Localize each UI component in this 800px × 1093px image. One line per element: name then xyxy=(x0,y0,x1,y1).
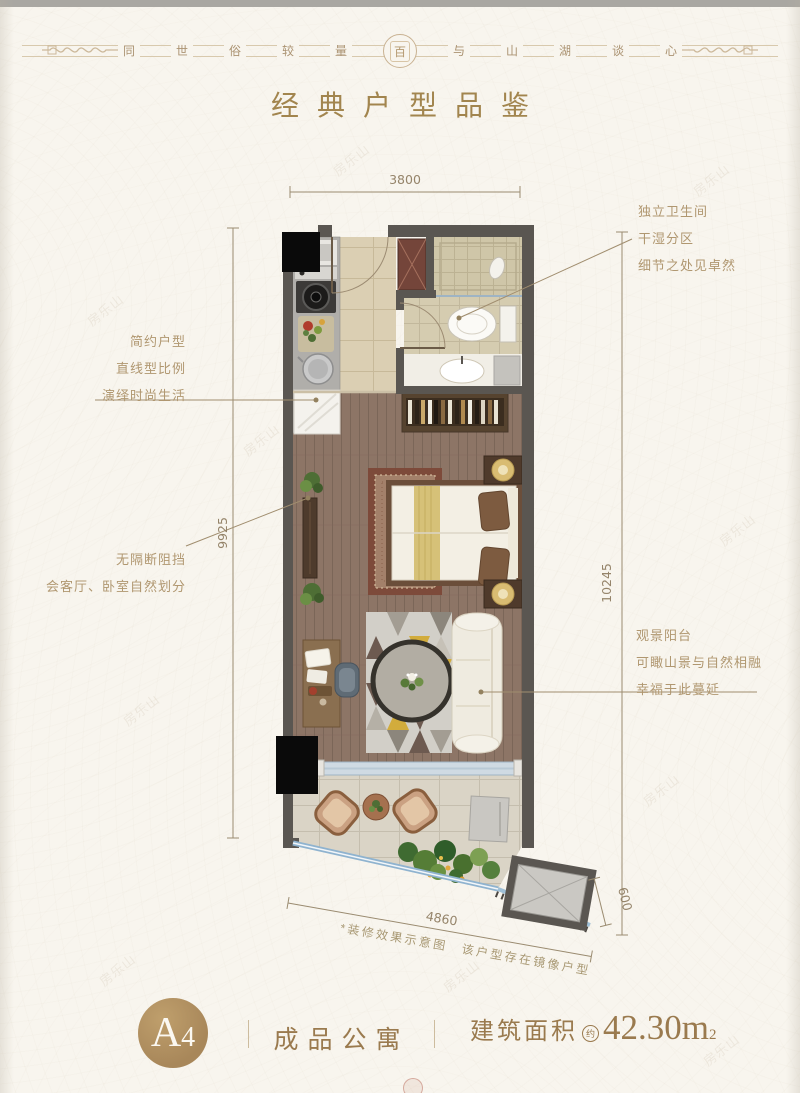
annotation-line: 细节之处见卓然 xyxy=(638,252,798,279)
unit-letter: A xyxy=(151,998,181,1068)
unit-number: 4 xyxy=(181,1003,195,1073)
annotation-line: 观景阳台 xyxy=(636,622,798,649)
annotation-line: 可瞰山景与自然相融 xyxy=(636,649,798,676)
area-exponent: 2 xyxy=(709,1027,717,1044)
annotation-line: 简约户型 xyxy=(0,328,186,355)
annotation-line: 幸福于此蔓延 xyxy=(636,676,798,703)
annotation-line: 直线型比例 xyxy=(0,355,186,382)
footer-divider xyxy=(248,1020,249,1048)
dim-top: 3800 xyxy=(389,172,421,187)
approx-circle: 约 xyxy=(582,1025,599,1042)
floorplan-poster: 房乐山 房乐山 房乐山 房乐山 房乐山 房乐山 房乐山 房乐山 房乐山 房乐山 … xyxy=(0,0,800,1093)
annotation-line: 会客厅、卧室自然划分 xyxy=(0,573,186,600)
dim-right: 10245 xyxy=(599,563,614,603)
dim-bottom: 4860 xyxy=(425,908,459,928)
annotation-line: 干湿分区 xyxy=(638,225,798,252)
annotation-bathroom: 独立卫生间 干湿分区 细节之处见卓然 xyxy=(638,198,798,279)
annotation-line: 演绎时尚生活 xyxy=(0,382,186,409)
annotation-balcony: 观景阳台 可瞰山景与自然相融 幸福于此蔓延 xyxy=(636,622,798,703)
area-info: 建筑面积 约 42.30m2 xyxy=(470,1008,716,1054)
bottom-seal-mark xyxy=(403,1078,423,1093)
unit-badge: A4 xyxy=(138,998,208,1068)
dim-platform: 600 xyxy=(615,886,635,913)
balcony-door xyxy=(316,760,522,776)
unit-type-label: 成品公寓 xyxy=(262,1020,412,1056)
annotation-line: 无隔断阻挡 xyxy=(0,546,186,573)
wardrobe xyxy=(398,239,426,290)
equipment-platform xyxy=(501,855,596,931)
annotation-kitchen: 简约户型 直线型比例 演绎时尚生活 xyxy=(0,328,186,409)
area-value: 42.30m xyxy=(603,1008,709,1048)
annotation-line: 独立卫生间 xyxy=(638,198,798,225)
dim-left: 9925 xyxy=(215,517,230,549)
area-label: 建筑面积 xyxy=(470,1010,578,1054)
footer-divider xyxy=(434,1020,435,1048)
annotation-living: 无隔断阻挡 会客厅、卧室自然划分 xyxy=(0,546,186,600)
